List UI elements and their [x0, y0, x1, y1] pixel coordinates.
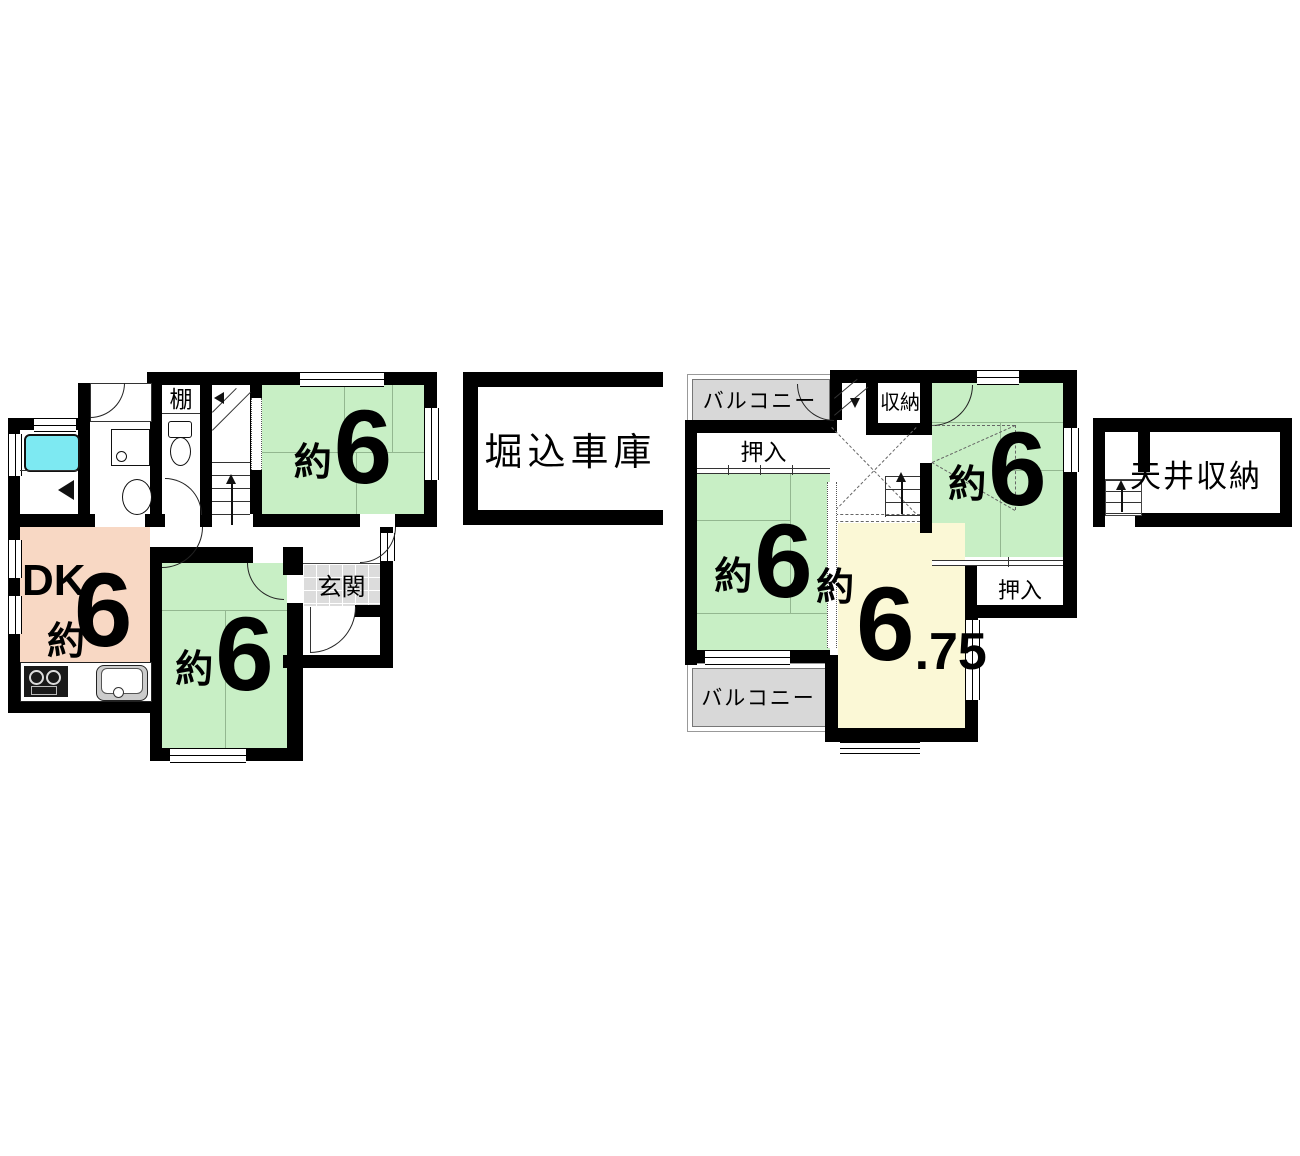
attic-text: 天井収納	[1130, 451, 1262, 496]
attic-label: 天井収納	[1110, 434, 1282, 512]
floor-plan-canvas: 棚 約 6 約 6 DK 約 6 玄関 堀込車庫	[0, 0, 1300, 1156]
attic-storage-plan: 天井収納	[0, 0, 1300, 1156]
wall	[1093, 418, 1105, 527]
wall	[1135, 513, 1292, 527]
wall	[1093, 418, 1292, 432]
